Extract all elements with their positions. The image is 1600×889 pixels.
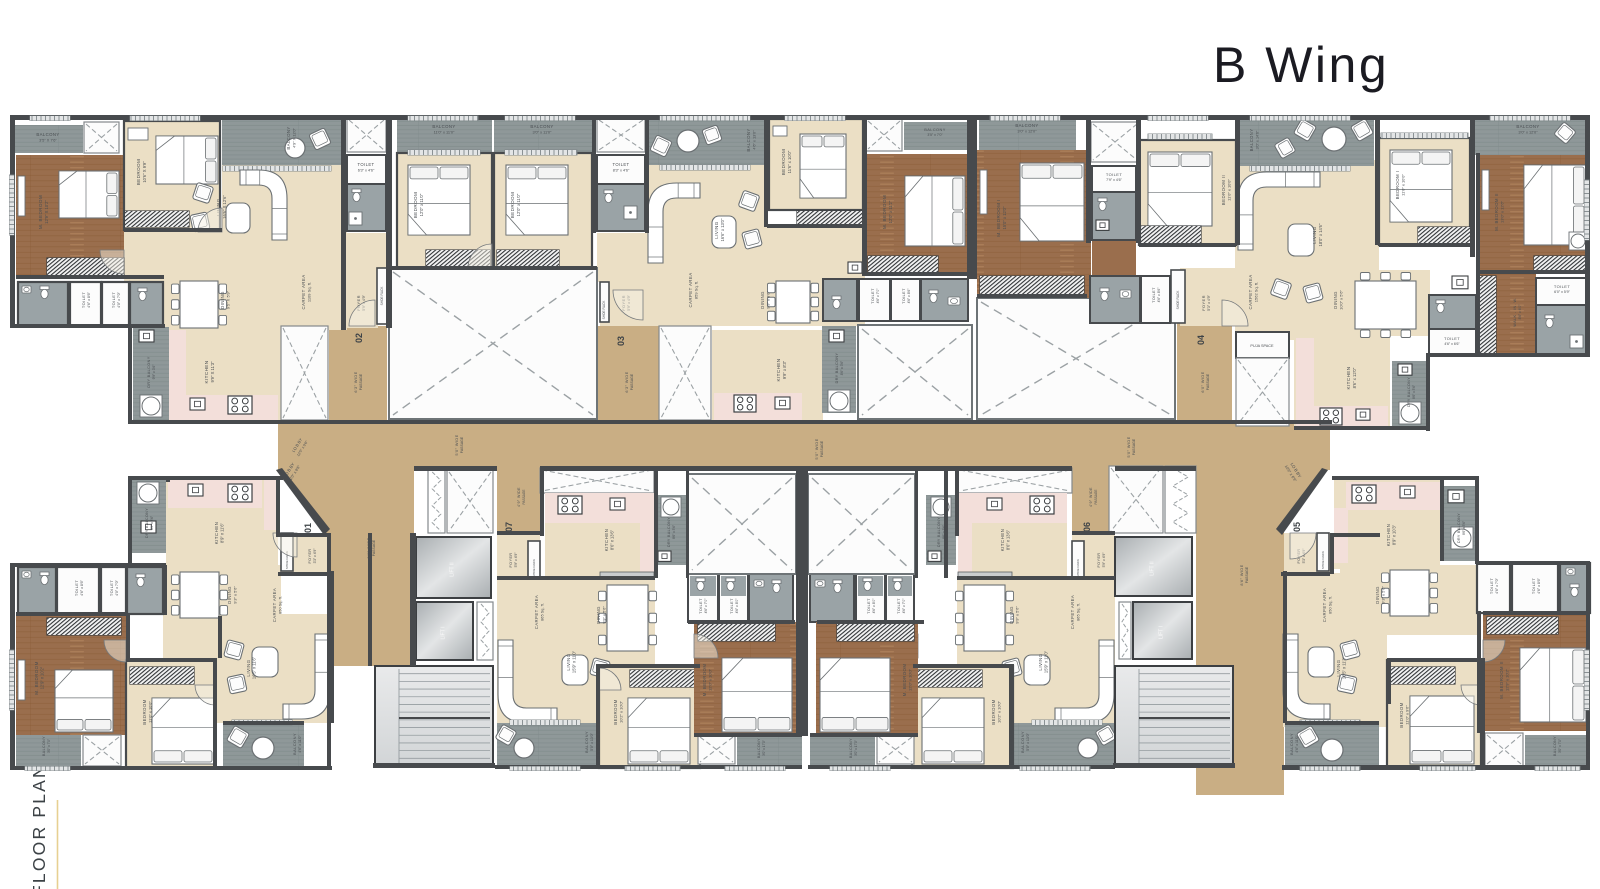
svg-text:4'6" x 7'0": 4'6" x 7'0" [704, 598, 708, 614]
svg-text:8'6" x 3'6": 8'6" x 3'6" [840, 360, 844, 375]
svg-text:M. BEDROOM II: M. BEDROOM II [1494, 193, 1499, 231]
svg-text:DRY BALCONY: DRY BALCONY [835, 353, 839, 384]
svg-text:8'6" WIDE: 8'6" WIDE [1239, 564, 1244, 585]
svg-text:BALCONY: BALCONY [1553, 736, 1557, 756]
svg-text:3'0" x 14'6": 3'0" x 14'6" [1255, 130, 1259, 149]
svg-text:5'3" x 4'9": 5'3" x 4'9" [1207, 294, 1211, 310]
svg-text:TOILET: TOILET [358, 162, 375, 167]
svg-text:M. BEDROOM I: M. BEDROOM I [996, 199, 1001, 236]
svg-text:4'9" WIDE: 4'9" WIDE [517, 487, 521, 507]
svg-text:18'0" x 14'6": 18'0" x 14'6" [1318, 223, 1323, 246]
svg-text:CARPET AREA: CARPET AREA [1322, 588, 1327, 622]
svg-text:TOILET: TOILET [111, 292, 116, 308]
svg-text:11'0" x 11'0": 11'0" x 11'0" [434, 130, 455, 135]
svg-text:859 Sq. ft.: 859 Sq. ft. [694, 281, 699, 299]
svg-text:BALCONY: BALCONY [924, 127, 945, 132]
svg-text:DRY BALCONY: DRY BALCONY [667, 517, 671, 547]
svg-text:TOILET: TOILET [902, 288, 906, 304]
svg-text:5'0" x 13'0": 5'0" x 13'0" [1026, 732, 1030, 750]
svg-text:850 Sq. ft.: 850 Sq. ft. [278, 596, 283, 614]
svg-text:15'0" x 12'0": 15'0" x 12'0" [1002, 206, 1007, 229]
svg-text:4'6" x 8'6": 4'6" x 8'6" [1537, 577, 1541, 593]
svg-text:8'6" x 6'0": 8'6" x 6'0" [1518, 304, 1522, 320]
svg-text:9'9" X 11'3": 9'9" X 11'3" [210, 361, 215, 383]
svg-text:03: 03 [616, 336, 626, 346]
svg-text:4'6" x 7'0": 4'6" x 7'0" [1495, 577, 1499, 593]
svg-text:865 Sq. ft.: 865 Sq. ft. [540, 603, 545, 621]
svg-text:3'0" x 7'0": 3'0" x 7'0" [1558, 739, 1562, 753]
svg-text:BEDROOM: BEDROOM [613, 699, 618, 725]
svg-text:TOILET: TOILET [867, 598, 871, 614]
svg-text:9'9" x 5'6": 9'9" x 5'6" [602, 606, 607, 624]
svg-text:M. BEDROOM II: M. BEDROOM II [1499, 661, 1504, 699]
svg-text:4'6" x 8'0": 4'6" x 8'0" [872, 598, 876, 614]
svg-text:16'5" x 11'6": 16'5" x 11'6" [252, 656, 257, 679]
svg-text:FOYER: FOYER [509, 552, 513, 567]
svg-text:3'0" x 7'0": 3'0" x 7'0" [47, 739, 51, 753]
svg-text:6'0" x 5'9": 6'0" x 5'9" [1554, 290, 1570, 294]
svg-text:8'6" x 13'6": 8'6" x 13'6" [1006, 529, 1011, 550]
svg-text:FOYER: FOYER [1097, 552, 1101, 567]
svg-text:3'0" x 17'0": 3'0" x 17'0" [762, 740, 766, 756]
svg-text:BALCONY: BALCONY [292, 733, 297, 755]
svg-text:8'9" x 11'6": 8'9" x 11'6" [220, 523, 225, 543]
svg-text:865 Sq. ft.: 865 Sq. ft. [1076, 603, 1081, 621]
svg-text:BEDROOM: BEDROOM [136, 159, 141, 186]
svg-text:8'6" x 3'6": 8'6" x 3'6" [1412, 385, 1416, 399]
svg-text:8'9" x 3'6": 8'9" x 3'6" [150, 516, 154, 530]
svg-text:SHOE RACK: SHOE RACK [602, 300, 606, 320]
svg-text:BALCONY: BALCONY [286, 126, 291, 149]
svg-text:4'9" X 12'0": 4'9" X 12'0" [292, 127, 297, 147]
svg-text:8'6" x 3'6": 8'6" x 3'6" [1462, 521, 1466, 535]
svg-text:LIFT II: LIFT II [1150, 561, 1156, 575]
svg-text:6'0" WIDE: 6'0" WIDE [1200, 371, 1205, 392]
svg-text:KITCHEN: KITCHEN [604, 529, 609, 552]
svg-text:PASSAGE: PASSAGE [372, 539, 376, 556]
svg-text:5'0" x 13'0": 5'0" x 13'0" [590, 732, 594, 750]
svg-text:4'6" x 8'6": 4'6" x 8'6" [80, 579, 84, 595]
svg-text:CARPET AREA: CARPET AREA [1070, 595, 1075, 629]
svg-text:TOILET: TOILET [613, 162, 630, 167]
svg-text:PASSAGE: PASSAGE [1094, 490, 1098, 505]
svg-text:M. BEDROOM: M. BEDROOM [38, 195, 43, 229]
svg-text:16'6" x 13'0": 16'6" x 13'0" [720, 218, 725, 241]
svg-text:BEDROOM: BEDROOM [510, 192, 515, 219]
svg-text:PASSAGE: PASSAGE [1206, 373, 1210, 390]
svg-text:TOILET: TOILET [74, 580, 79, 596]
svg-text:TOILET: TOILET [1106, 172, 1122, 177]
svg-text:11'0" x 10'0": 11'0" x 10'0" [148, 701, 153, 723]
svg-text:TOILET: TOILET [871, 288, 875, 304]
svg-text:4'6" x 8'6": 4'6" x 8'6" [907, 288, 911, 304]
svg-text:BALCONY: BALCONY [1015, 123, 1038, 128]
svg-text:KITCHEN: KITCHEN [1386, 524, 1391, 547]
svg-text:SHOE RACK: SHOE RACK [532, 558, 536, 577]
svg-text:16'6" X 12'6": 16'6" X 12'6" [222, 195, 227, 219]
svg-text:BEDROOM: BEDROOM [781, 149, 786, 176]
svg-text:FLOOR PLAN: FLOOR PLAN [29, 763, 49, 889]
svg-text:4'6" x 8'6": 4'6" x 8'6" [1157, 287, 1161, 303]
svg-text:KITCHEN: KITCHEN [214, 522, 219, 545]
svg-text:SHOE RACK: SHOE RACK [1321, 550, 1325, 569]
svg-text:DINING: DINING [227, 586, 232, 604]
svg-text:12'0" x 11'0": 12'0" x 11'0" [419, 193, 424, 216]
svg-text:SHOE RACK: SHOE RACK [1176, 290, 1180, 310]
svg-text:11'0" x 10'0": 11'0" x 10'0" [1227, 179, 1232, 201]
svg-text:KITCHEN: KITCHEN [1346, 367, 1351, 390]
svg-text:3'3" x 4'9": 3'3" x 4'9" [313, 548, 317, 564]
svg-text:PUJA SPACE: PUJA SPACE [1250, 344, 1274, 348]
svg-text:DRY BALCONY: DRY BALCONY [937, 517, 941, 547]
svg-text:DRY BALCONY: DRY BALCONY [1407, 377, 1411, 407]
svg-text:8'6" x 3'6": 8'6" x 3'6" [672, 525, 676, 539]
svg-text:BALCONY: BALCONY [584, 731, 589, 753]
svg-text:BALCONY: BALCONY [1289, 733, 1294, 755]
svg-text:CARPET AREA: CARPET AREA [272, 588, 277, 622]
svg-text:4'6" x 8'0": 4'6" x 8'0" [735, 598, 739, 614]
svg-text:PASSAGE: PASSAGE [1245, 566, 1249, 583]
svg-text:8'9" x 10'3": 8'9" x 10'3" [1392, 524, 1397, 545]
svg-text:DINING: DINING [596, 606, 601, 624]
svg-text:12'0" x 10'0": 12'0" x 10'0" [708, 668, 713, 691]
svg-text:CARPET AREA: CARPET AREA [688, 272, 693, 307]
svg-text:BALCONY: BALCONY [42, 736, 46, 756]
svg-text:10'2" x 10'0": 10'2" x 10'0" [997, 700, 1002, 723]
svg-text:DINING: DINING [1333, 291, 1338, 309]
svg-text:4'9" WIDE: 4'9" WIDE [1089, 487, 1093, 507]
svg-text:TOILET: TOILET [1489, 578, 1494, 594]
svg-text:850 Sq. ft.: 850 Sq. ft. [1328, 596, 1333, 614]
svg-text:B Wing: B Wing [1213, 37, 1389, 93]
svg-text:3'0" x 12'0": 3'0" x 12'0" [1017, 129, 1037, 134]
svg-text:12'9" x 10'2": 12'9" x 10'2" [1505, 668, 1510, 691]
svg-text:1562 Sq. ft.: 1562 Sq. ft. [1254, 282, 1259, 302]
svg-text:BALCONY: BALCONY [849, 738, 853, 758]
svg-text:07: 07 [504, 522, 514, 532]
svg-text:4'0" x 7'0": 4'0" x 7'0" [115, 579, 119, 595]
svg-text:BEDROOM: BEDROOM [1399, 702, 1404, 728]
svg-text:4'6" x 11'0": 4'6" x 11'0" [298, 735, 302, 753]
svg-text:DINING: DINING [760, 291, 765, 309]
svg-text:DINING: DINING [220, 291, 225, 309]
svg-text:11'6" x 10'0": 11'6" x 10'0" [787, 150, 792, 173]
svg-text:BALCONY: BALCONY [36, 132, 59, 137]
svg-text:10'2" x 10'0": 10'2" x 10'0" [619, 700, 624, 723]
svg-text:10'6" X 9'9": 10'6" X 9'9" [142, 161, 147, 183]
svg-text:4'0" x 7'0": 4'0" x 7'0" [117, 291, 121, 307]
svg-text:PASSAGE: PASSAGE [522, 490, 526, 505]
svg-text:04: 04 [1196, 335, 1206, 345]
svg-text:PASSAGE: PASSAGE [460, 436, 464, 453]
svg-text:KITCHEN: KITCHEN [776, 359, 781, 382]
svg-text:16'5" x 11'3": 16'5" x 11'3" [1342, 656, 1347, 679]
svg-text:11'0" x 9'6": 11'0" x 9'6" [1405, 705, 1410, 725]
svg-text:9'3" x 5'6": 9'3" x 5'6" [233, 586, 238, 604]
svg-text:PASSAGE: PASSAGE [1132, 438, 1136, 455]
svg-text:CARPET AREA: CARPET AREA [301, 274, 306, 309]
svg-text:9'9" x 8'6": 9'9" x 8'6" [766, 291, 771, 309]
svg-text:3'0" x 12'0": 3'0" x 12'0" [1518, 130, 1538, 135]
svg-text:M. BEDROOM: M. BEDROOM [702, 664, 707, 697]
svg-text:4'6" x 13'0": 4'6" x 13'0" [752, 130, 757, 150]
svg-text:BALCONY: BALCONY [746, 128, 751, 151]
svg-text:5'9" x 4'9": 5'9" x 4'9" [514, 552, 518, 568]
svg-text:6'3" x 4'6": 6'3" x 4'6" [358, 168, 375, 172]
svg-text:TOILET: TOILET [109, 580, 114, 596]
svg-text:SHOE RACK: SHOE RACK [380, 286, 384, 306]
svg-text:15'9" x 11'0": 15'9" x 11'0" [572, 650, 577, 673]
svg-text:12'0" x 11'0": 12'0" x 11'0" [516, 193, 521, 216]
svg-text:TOILET: TOILET [897, 598, 901, 614]
svg-text:4'6" x 7'0": 4'6" x 7'0" [876, 288, 880, 304]
svg-text:02: 02 [354, 333, 364, 343]
svg-text:4'6" x 11'0": 4'6" x 11'0" [1295, 735, 1299, 753]
svg-text:4'6" x 8'6": 4'6" x 8'6" [87, 291, 91, 307]
svg-text:BEDROOM: BEDROOM [991, 699, 996, 725]
svg-text:BALCONY: BALCONY [1020, 731, 1025, 753]
svg-text:6'3" WIDE: 6'3" WIDE [353, 371, 358, 392]
svg-text:TOILET: TOILET [699, 598, 703, 614]
svg-text:LIFT I: LIFT I [441, 627, 447, 640]
svg-text:9'3" x 5'6": 9'3" x 5'6" [1381, 586, 1386, 604]
svg-text:CARPET AREA: CARPET AREA [1248, 274, 1253, 309]
svg-text:LIVING: LIVING [246, 659, 251, 676]
svg-text:8'6" x 12'0": 8'6" x 12'0" [1352, 367, 1357, 388]
svg-text:DINING: DINING [1009, 606, 1014, 624]
svg-text:3'0" x 11'0": 3'0" x 11'0" [533, 130, 553, 135]
svg-text:TOILET: TOILET [1444, 336, 1460, 341]
svg-text:BEDROOM I: BEDROOM I [1395, 171, 1400, 200]
svg-text:LIFT II: LIFT II [450, 562, 456, 576]
svg-text:11'0" x 10'0": 11'0" x 10'0" [1401, 174, 1406, 196]
svg-text:1109 Sq. ft.: 1109 Sq. ft. [307, 282, 312, 302]
svg-text:BALCONY: BALCONY [757, 738, 761, 758]
svg-text:LIFT I: LIFT I [1159, 626, 1165, 639]
svg-text:TOILET: TOILET [730, 598, 734, 614]
svg-text:M. BEDROOM: M. BEDROOM [34, 661, 39, 695]
svg-text:BEDROOM II: BEDROOM II [1221, 175, 1226, 205]
svg-text:01: 01 [303, 523, 313, 533]
svg-text:CARPET AREA: CARPET AREA [534, 595, 539, 629]
svg-text:13'0" x 12'6": 13'0" x 12'6" [1500, 200, 1505, 223]
svg-text:M. BEDROOM: M. BEDROOM [882, 195, 887, 229]
svg-text:TOILET: TOILET [81, 292, 86, 308]
svg-text:M. BEDROOM: M. BEDROOM [902, 664, 907, 697]
svg-text:LIVING: LIVING [1038, 653, 1043, 670]
svg-text:3'0" x 17'0": 3'0" x 17'0" [854, 740, 858, 756]
svg-text:7'9" x 4'6": 7'9" x 4'6" [1106, 178, 1122, 182]
svg-text:5'0" WIDE: 5'0" WIDE [814, 438, 819, 459]
svg-text:BALCONY: BALCONY [432, 124, 455, 129]
svg-text:LIVING: LIVING [714, 221, 719, 238]
svg-text:PASSAGE: PASSAGE [820, 440, 824, 457]
svg-text:DRY BALCONY: DRY BALCONY [1457, 513, 1461, 543]
svg-text:PASSAGE: PASSAGE [630, 373, 634, 390]
svg-text:12'9" x 10'2": 12'9" x 10'2" [40, 666, 45, 689]
svg-text:12'0" x 10'0": 12'0" x 10'0" [908, 668, 913, 691]
svg-text:LIVING: LIVING [1336, 659, 1341, 676]
svg-text:DRY BALCONY: DRY BALCONY [145, 508, 149, 538]
svg-text:TOILET: TOILET [1531, 578, 1536, 594]
svg-text:8'6" x 13'6": 8'6" x 13'6" [610, 529, 615, 550]
svg-text:05: 05 [1292, 522, 1302, 532]
svg-text:TOILET: TOILET [1554, 284, 1570, 289]
svg-text:5'0" WIDE: 5'0" WIDE [454, 434, 459, 455]
svg-text:10'0" x 5'6": 10'0" x 5'6" [1339, 290, 1344, 310]
svg-text:5'0" WIDE: 5'0" WIDE [1126, 436, 1131, 457]
svg-text:FOYER: FOYER [1201, 295, 1206, 311]
svg-text:LIVING: LIVING [566, 653, 571, 670]
svg-text:BEDROOM: BEDROOM [142, 699, 147, 725]
svg-text:9'9" x 3'6": 9'9" x 3'6" [152, 364, 156, 380]
svg-text:BALCONY: BALCONY [1516, 124, 1539, 129]
svg-text:12'9" X 10'2": 12'9" X 10'2" [44, 200, 49, 224]
svg-text:DRY BALCONY: DRY BALCONY [147, 356, 151, 388]
svg-text:SHOE RACK: SHOE RACK [1076, 558, 1080, 577]
svg-text:12'0" x 11'2": 12'0" x 11'2" [888, 200, 893, 223]
svg-text:15'9" x 11'0": 15'9" x 11'0" [1044, 650, 1049, 673]
svg-text:3'5" x 7'0": 3'5" x 7'0" [927, 133, 943, 137]
svg-text:KITCHEN: KITCHEN [204, 361, 209, 384]
svg-text:PASSAGE: PASSAGE [359, 373, 363, 390]
svg-text:9'5" X 5'9": 9'5" X 5'9" [226, 290, 231, 309]
svg-text:6'3" WIDE: 6'3" WIDE [624, 371, 629, 392]
svg-text:LIVING: LIVING [1312, 226, 1317, 243]
svg-text:BALCONY: BALCONY [1249, 129, 1254, 152]
svg-text:4'6" x 7'0": 4'6" x 7'0" [902, 598, 906, 614]
svg-text:TOILET: TOILET [1152, 287, 1156, 303]
svg-text:FOYER: FOYER [308, 548, 312, 563]
svg-text:KITCHEN: KITCHEN [1000, 529, 1005, 552]
svg-text:WALK - IN. W.: WALK - IN. W. [1513, 297, 1517, 327]
svg-text:DINING: DINING [1375, 586, 1380, 604]
svg-text:4'6" x 6'6": 4'6" x 6'6" [1444, 342, 1460, 346]
svg-text:9'9" x 8'3": 9'9" x 8'3" [782, 360, 787, 379]
svg-text:BEDROOM: BEDROOM [413, 192, 418, 219]
svg-text:3'5" X 7'6": 3'5" X 7'6" [39, 138, 57, 143]
svg-text:BALCONY: BALCONY [530, 124, 553, 129]
svg-text:8'3" x 4'6": 8'3" x 4'6" [613, 168, 630, 172]
svg-text:5'9" x 4'9": 5'9" x 4'9" [1102, 552, 1106, 568]
svg-text:9'9" x 5'6": 9'9" x 5'6" [1015, 606, 1020, 624]
svg-text:06: 06 [1082, 522, 1092, 532]
